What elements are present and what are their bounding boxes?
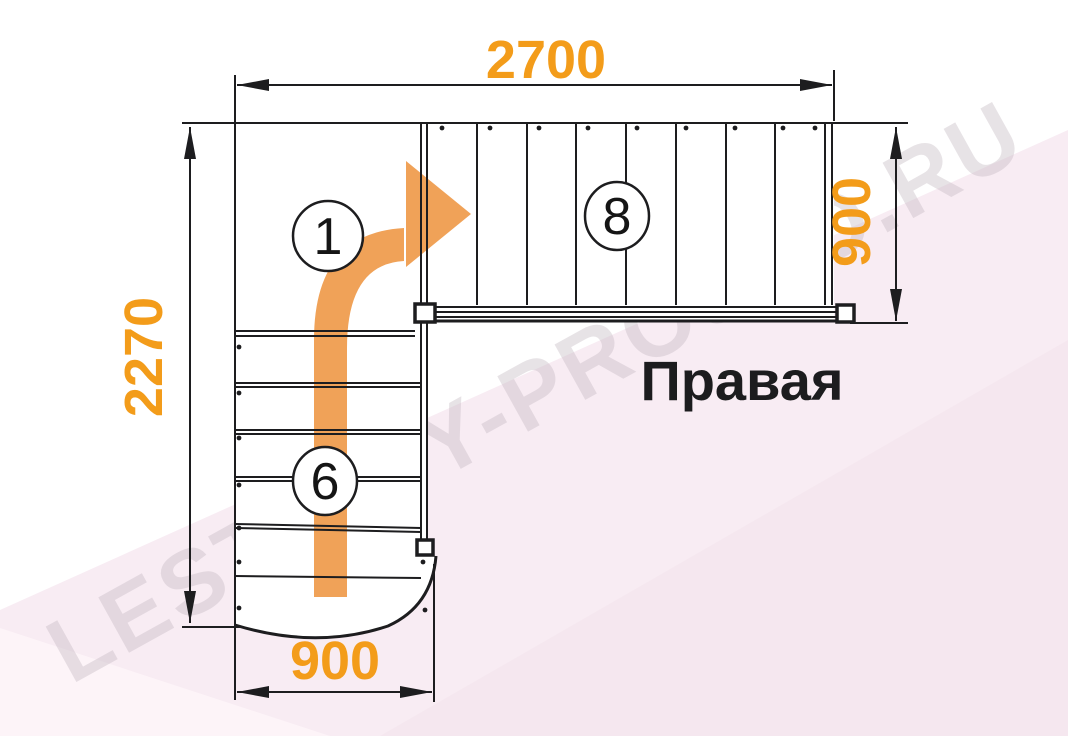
dimension-label-right: 900 [822, 177, 882, 267]
newel-post-right [837, 305, 854, 322]
newel-post-bottom [417, 540, 433, 555]
marker-label-1: 1 [314, 208, 343, 266]
marker-label-8: 8 [603, 188, 632, 246]
marker-label-6: 6 [311, 453, 340, 511]
staircase-plan-canvas: LESTNICY-PROSTO.RU [0, 0, 1068, 736]
dimension-label-bottom: 900 [290, 631, 380, 691]
dimension-label-top: 2700 [486, 30, 606, 90]
dimension-label-left: 2270 [114, 297, 174, 417]
staircase-plan-drawing: LESTNICY-PROSTO.RU [0, 0, 1068, 736]
newel-post-corner [415, 304, 435, 322]
plan-title: Правая [640, 349, 843, 412]
